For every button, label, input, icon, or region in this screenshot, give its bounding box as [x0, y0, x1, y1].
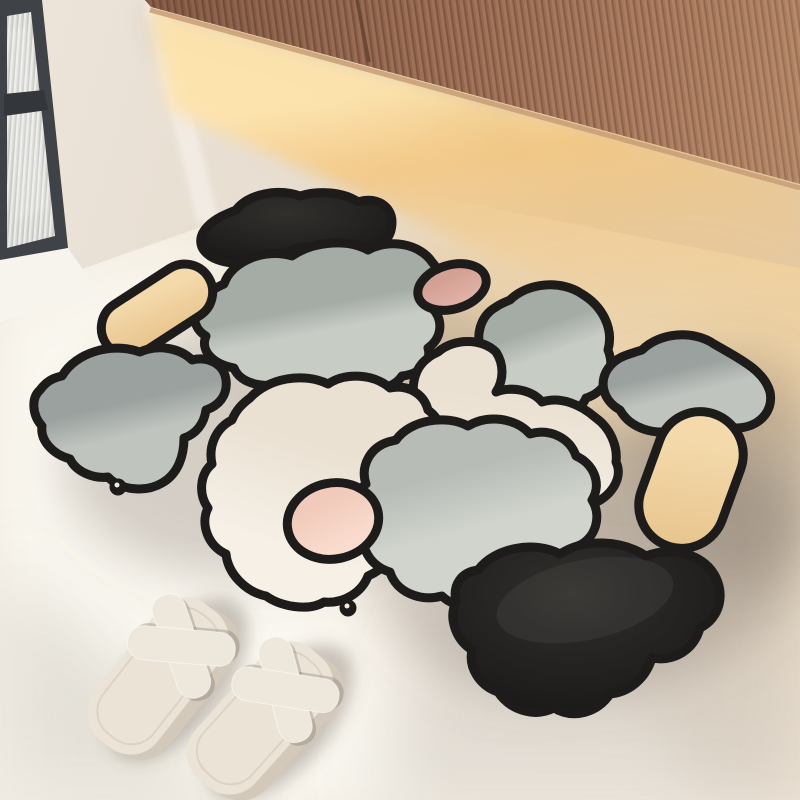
mat-tab-left: [110, 479, 127, 496]
photo-stage: [0, 0, 800, 800]
mat-piece-sage-cloud: [195, 243, 442, 393]
mat-tab-bottom: [340, 600, 357, 617]
scene-illustration: [0, 0, 800, 800]
tab-hole: [345, 604, 350, 609]
tab-hole: [115, 483, 120, 488]
